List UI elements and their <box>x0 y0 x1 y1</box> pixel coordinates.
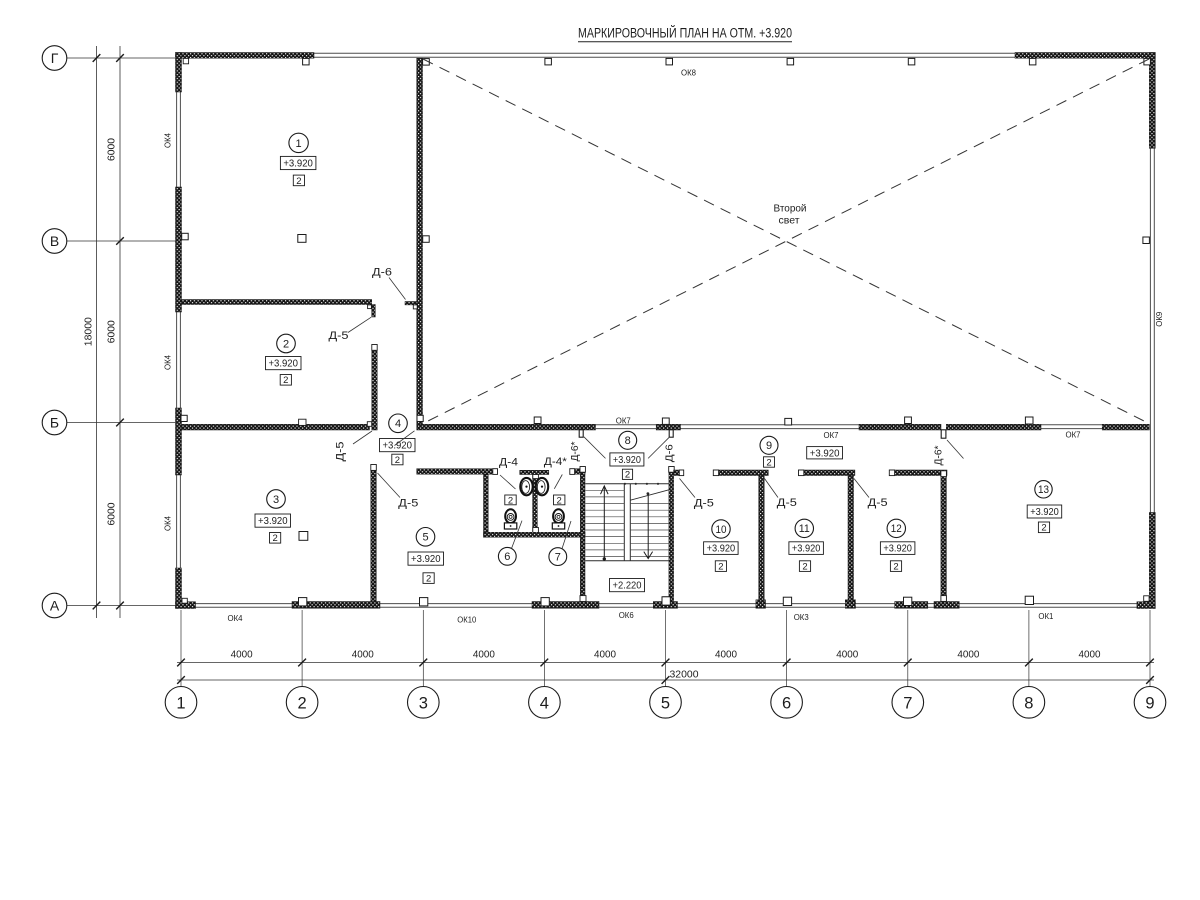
svg-text:4000: 4000 <box>352 649 374 661</box>
svg-text:+3.920: +3.920 <box>382 441 412 452</box>
svg-text:2: 2 <box>298 694 307 712</box>
svg-text:Д-5: Д-5 <box>335 442 347 462</box>
svg-text:+3.920: +3.920 <box>883 544 912 555</box>
svg-text:+2.220: +2.220 <box>613 581 642 592</box>
svg-text:ОК10: ОК10 <box>457 615 477 624</box>
svg-text:4000: 4000 <box>473 649 495 661</box>
svg-text:2: 2 <box>283 375 288 386</box>
svg-text:Г: Г <box>51 50 59 66</box>
svg-text:4000: 4000 <box>836 649 858 661</box>
svg-text:Д-4*: Д-4* <box>544 456 568 468</box>
svg-text:4: 4 <box>540 694 549 712</box>
svg-text:ОК4: ОК4 <box>164 132 173 148</box>
svg-text:6000: 6000 <box>106 320 118 343</box>
svg-text:МАРКИРОВОЧНЫЙ ПЛАН НА ОТМ. +3.: МАРКИРОВОЧНЫЙ ПЛАН НА ОТМ. +3.920 <box>578 26 792 41</box>
svg-text:4000: 4000 <box>957 649 979 661</box>
svg-text:Д-6*: Д-6* <box>932 446 944 466</box>
svg-text:4: 4 <box>395 418 401 430</box>
svg-text:4000: 4000 <box>231 649 253 661</box>
svg-text:Д-6: Д-6 <box>663 444 675 462</box>
svg-text:+3.920: +3.920 <box>268 359 298 370</box>
svg-text:ОК1: ОК1 <box>1038 612 1054 621</box>
svg-text:+3.920: +3.920 <box>411 554 441 565</box>
svg-text:2: 2 <box>426 574 431 585</box>
svg-text:11: 11 <box>799 523 810 535</box>
svg-text:Второй: Второй <box>774 203 807 215</box>
svg-text:6000: 6000 <box>106 502 118 525</box>
svg-text:4000: 4000 <box>715 649 737 661</box>
svg-text:Д-4: Д-4 <box>499 457 518 469</box>
svg-text:Д-5: Д-5 <box>398 498 418 510</box>
svg-text:6: 6 <box>504 551 510 563</box>
svg-text:8: 8 <box>1024 694 1033 712</box>
svg-text:2: 2 <box>766 457 771 468</box>
svg-text:2: 2 <box>395 455 400 466</box>
svg-text:1: 1 <box>296 138 302 150</box>
svg-text:4000: 4000 <box>1079 649 1101 661</box>
svg-text:7: 7 <box>903 694 912 712</box>
svg-text:+3.920: +3.920 <box>613 455 641 466</box>
svg-text:9: 9 <box>766 440 772 452</box>
svg-text:Д-5: Д-5 <box>329 330 349 342</box>
svg-text:ОК4: ОК4 <box>164 515 173 531</box>
svg-text:5: 5 <box>422 532 428 544</box>
svg-text:Д-6: Д-6 <box>372 266 392 278</box>
svg-text:2: 2 <box>557 495 562 506</box>
svg-text:18000: 18000 <box>83 317 95 346</box>
svg-text:Д-6*: Д-6* <box>569 442 581 462</box>
svg-text:ОК7: ОК7 <box>616 417 632 426</box>
svg-text:2: 2 <box>1041 523 1046 534</box>
svg-text:2: 2 <box>802 562 807 573</box>
svg-text:12: 12 <box>891 523 902 535</box>
svg-text:5: 5 <box>661 694 670 712</box>
svg-text:ОК9: ОК9 <box>1155 311 1164 327</box>
svg-text:3: 3 <box>419 694 428 712</box>
svg-text:2: 2 <box>625 470 630 481</box>
svg-text:32000: 32000 <box>670 668 699 680</box>
svg-text:10: 10 <box>716 524 727 536</box>
svg-text:ОК7: ОК7 <box>1066 430 1082 439</box>
svg-text:+3.920: +3.920 <box>258 516 288 527</box>
svg-text:8: 8 <box>625 435 631 447</box>
svg-text:свет: свет <box>779 215 800 227</box>
svg-text:2: 2 <box>718 562 723 573</box>
svg-text:+3.920: +3.920 <box>283 159 313 170</box>
svg-text:2: 2 <box>272 533 277 544</box>
svg-text:В: В <box>50 233 59 249</box>
svg-text:6000: 6000 <box>106 138 118 161</box>
svg-text:2: 2 <box>296 176 301 187</box>
svg-text:2: 2 <box>893 562 898 573</box>
svg-text:2: 2 <box>508 495 513 506</box>
svg-text:7: 7 <box>555 552 561 564</box>
svg-text:ОК3: ОК3 <box>794 613 810 622</box>
svg-text:ОК4: ОК4 <box>164 354 173 370</box>
svg-text:Д-5: Д-5 <box>868 497 888 509</box>
svg-text:+3.920: +3.920 <box>810 448 840 459</box>
svg-text:Д-5: Д-5 <box>777 497 797 509</box>
svg-text:6: 6 <box>782 694 791 712</box>
svg-text:+3.920: +3.920 <box>1030 507 1059 518</box>
svg-text:+3.920: +3.920 <box>707 544 736 555</box>
svg-text:4000: 4000 <box>594 649 616 661</box>
svg-text:13: 13 <box>1038 484 1049 496</box>
svg-text:ОК4: ОК4 <box>228 614 244 623</box>
svg-text:2: 2 <box>283 338 289 350</box>
svg-text:+3.920: +3.920 <box>792 544 821 555</box>
svg-text:ОК6: ОК6 <box>619 611 635 620</box>
svg-text:Б: Б <box>50 415 59 431</box>
svg-text:ОК7: ОК7 <box>824 431 840 440</box>
svg-text:А: А <box>50 598 60 614</box>
svg-text:ОК8: ОК8 <box>681 69 697 78</box>
svg-text:3: 3 <box>273 494 279 506</box>
svg-text:Д-5: Д-5 <box>694 497 714 509</box>
svg-text:9: 9 <box>1145 694 1154 712</box>
svg-text:1: 1 <box>176 694 185 712</box>
